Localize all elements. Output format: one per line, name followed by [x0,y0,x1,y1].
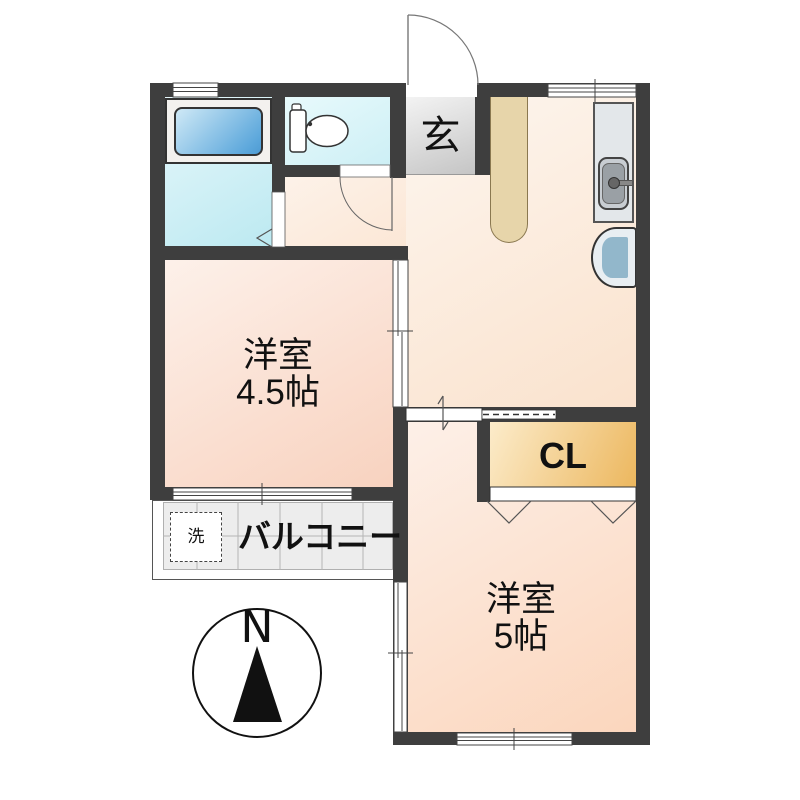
window-room2-bottom-icon [457,728,572,750]
western-room-1-size: 4.5帖 [163,374,393,411]
bath-door-icon [257,192,285,247]
toilet-icon [290,104,348,152]
floor-plan: N 玄 洋室 4.5帖 洋室 5帖 CL バルコニー 洗 [0,0,800,800]
plan-linework: N [0,0,800,800]
western-room-1-name: 洋室 [163,337,393,374]
washing-machine-space: 洗 [170,512,222,562]
window-kitchen-icon [548,79,636,102]
compass-north-label: N [241,602,274,653]
closet-door-icon [487,487,636,523]
entrance-label: 玄 [406,110,475,162]
window-bath-icon [173,83,218,97]
balcony-label: バルコニー [225,519,415,555]
compass-icon: N [193,602,321,737]
toilet-door-icon [340,165,392,231]
closet-label: CL [490,437,636,475]
washing-machine-label: 洗 [171,513,221,561]
western-room-2-label: 洋室 5帖 [406,581,636,655]
room2-sliding-door-icon [406,396,556,430]
entrance-door-icon [406,15,478,97]
western-room-2-size: 5帖 [406,618,636,655]
western-room-2-name: 洋室 [406,581,636,618]
western-room-1-label: 洋室 4.5帖 [163,337,393,411]
window-room1-icon [173,483,352,505]
